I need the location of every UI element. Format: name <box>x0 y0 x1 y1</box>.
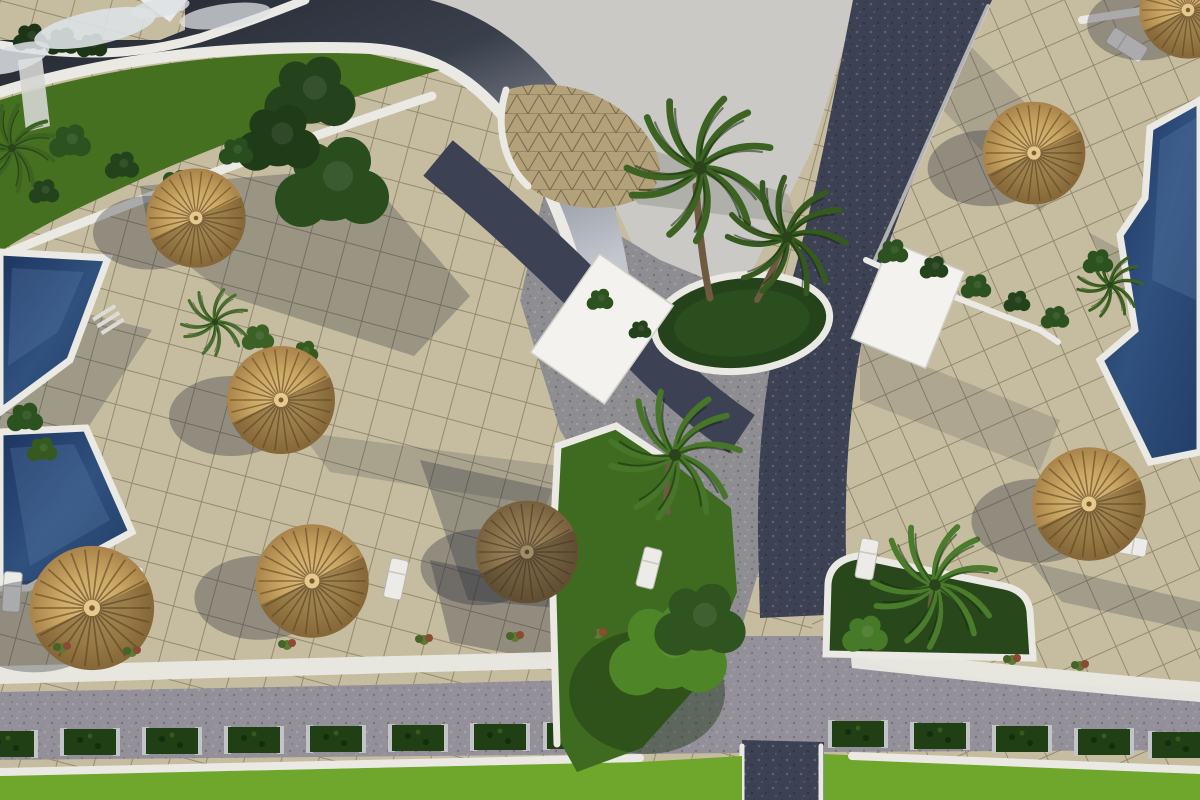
hedge-planter <box>1148 731 1200 759</box>
hedge-planter <box>992 725 1052 753</box>
hedge-planter <box>60 728 120 756</box>
scene-canvas <box>0 0 1200 800</box>
hedge-planter <box>1074 728 1134 756</box>
driveway-texture <box>742 740 824 800</box>
hedge-planter <box>0 730 38 758</box>
hedge-planter <box>142 727 202 755</box>
hedge-planter <box>828 720 888 748</box>
hedge-planter <box>306 725 366 753</box>
hedge-planter <box>910 722 970 750</box>
aerial-resort-render <box>0 0 1200 800</box>
hedge-planter <box>224 726 284 754</box>
hedge-planter <box>470 723 530 751</box>
hedge-planter <box>388 724 448 752</box>
